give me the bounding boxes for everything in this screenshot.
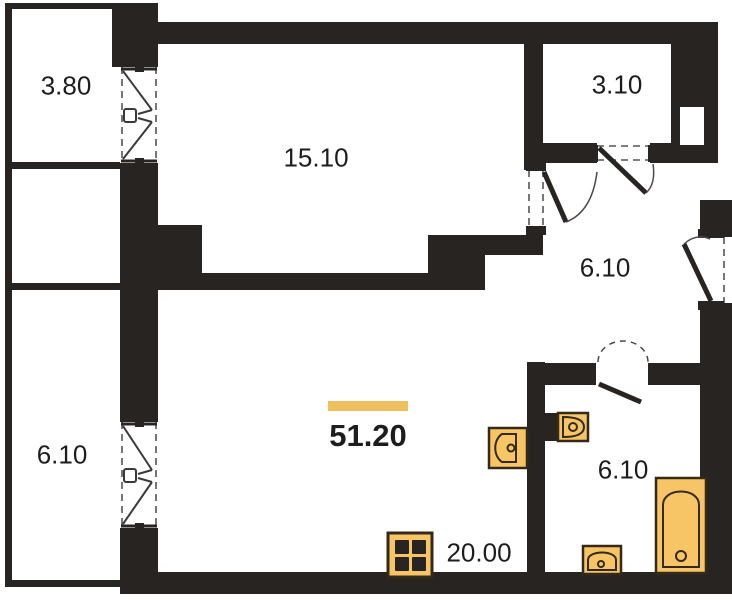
wall-bathroom-top-left bbox=[527, 363, 596, 385]
total-area-highlight-bar bbox=[328, 401, 408, 411]
shaft-niche bbox=[680, 107, 704, 145]
door-storage-icon bbox=[589, 145, 657, 193]
room-label-kitchen-living: 20.00 bbox=[446, 538, 511, 569]
room-label-balcony-bottom: 6.10 bbox=[37, 440, 88, 471]
window-living-icon bbox=[120, 66, 158, 164]
door-living-icon bbox=[526, 163, 597, 235]
wall-storage-bottom-left bbox=[543, 143, 597, 163]
room-label-storage: 3.10 bbox=[592, 70, 643, 101]
toilet-icon bbox=[558, 413, 588, 441]
wall-living-storage bbox=[524, 44, 543, 170]
window-kitchen-icon bbox=[120, 421, 158, 529]
wall-living-bottom-step2 bbox=[428, 255, 485, 290]
stove-icon bbox=[388, 533, 432, 577]
room-label-living: 15.10 bbox=[283, 143, 348, 174]
floor-plan: 3.80 15.10 3.10 6.10 6.10 6.10 20.00 51.… bbox=[0, 0, 732, 600]
wall-bathroom-left bbox=[527, 362, 545, 572]
wall-top-left-corner bbox=[112, 3, 158, 67]
wall-left-mid bbox=[120, 163, 158, 422]
room-label-bathroom: 6.10 bbox=[598, 455, 649, 486]
door-bathroom-icon bbox=[588, 341, 656, 402]
bathroom-sink-icon bbox=[583, 546, 621, 574]
entrance-door-icon bbox=[684, 229, 724, 310]
wall-living-step-left bbox=[158, 225, 202, 273]
wall-right-shaft-block bbox=[671, 44, 718, 163]
bathtub-icon bbox=[656, 478, 706, 573]
kitchen-sink-icon bbox=[489, 428, 527, 468]
wall-top bbox=[158, 22, 718, 44]
total-area-label: 51.20 bbox=[329, 418, 407, 454]
wall-living-bottom-step bbox=[428, 235, 543, 255]
room-label-hallway: 6.10 bbox=[580, 253, 631, 284]
room-label-balcony-top: 3.80 bbox=[41, 71, 92, 102]
